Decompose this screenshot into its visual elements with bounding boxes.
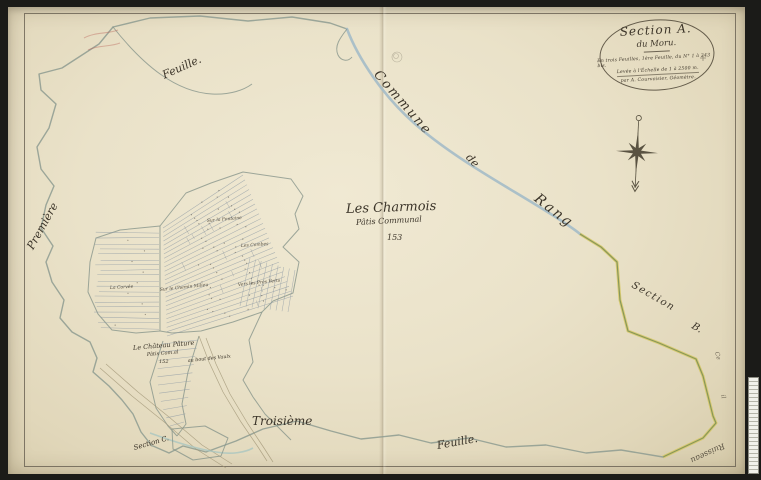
spine-label-sticker	[748, 377, 759, 474]
cartouche-text: Section A. du Moru. En trois Feuilles, 1…	[595, 20, 718, 85]
cartouche: Section A. du Moru. En trois Feuilles, 1…	[595, 13, 719, 97]
label-troisieme: Troisième	[252, 415, 312, 427]
cartouche-title: Section A.	[619, 21, 692, 39]
label-parcel-152: 152	[159, 360, 169, 365]
label-edge-fragment-1: Ce	[713, 351, 721, 360]
label-parcel-153: 153	[387, 234, 402, 242]
scanned-cadastral-map: Section A. du Moru. En trois Feuilles, 1…	[0, 0, 761, 480]
cartouche-subtitle: du Moru.	[636, 38, 676, 50]
cartouche-divider	[644, 50, 670, 52]
cartouche-line3: En trois Feuilles, 1ère Feuille, du N° 1…	[597, 53, 717, 69]
label-les-charmois: Les Charmois	[346, 200, 437, 216]
